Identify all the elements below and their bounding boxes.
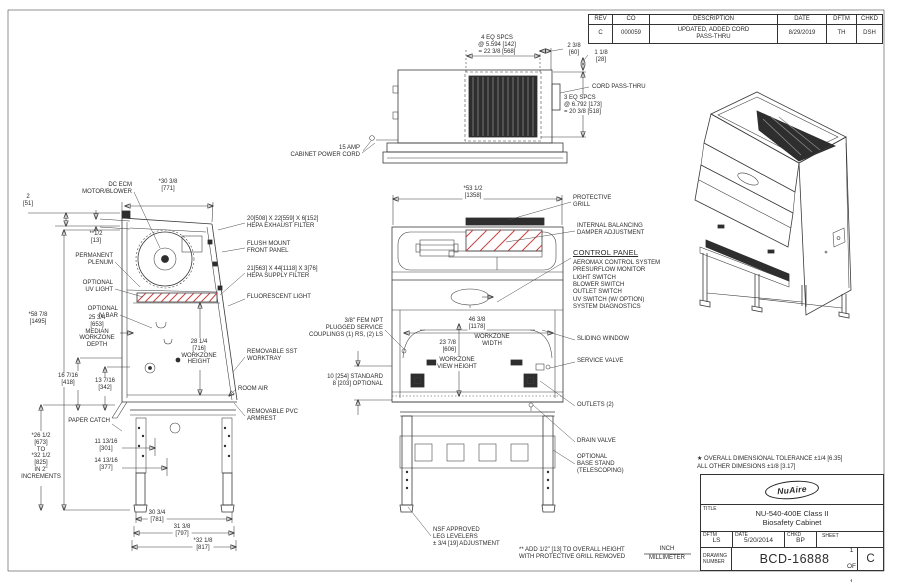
dim-30-3-8: *30 3/8 [771] (157, 179, 178, 193)
label-dc-ecm-motor: DC ECM MOTOR/BLOWER (82, 182, 132, 196)
dim-11-13-16: 11 13/16 [301] (94, 439, 119, 453)
dim-58-7-8: *58 7/8 [1495] (27, 312, 48, 326)
drawing-number-label: DRAWING NUMBER (701, 548, 732, 570)
label-fluorescent-light: FLUORESCENT LIGHT (247, 294, 311, 301)
label-control-panel-items: AEROMAX CONTROL SYSTEM PRESURFLOW MONITO… (573, 260, 660, 311)
drawing-number: BCD-16888 (732, 548, 858, 570)
label-room-air: ROOM AIR (238, 386, 268, 393)
co-header: CO (613, 15, 650, 24)
chkd-header: CHKD (857, 15, 882, 24)
description-value: UPDATED, ADDED CORD PASS-THRU (650, 25, 778, 43)
drawing-title: NU-540-400E Class II Biosafety Cabinet (756, 509, 829, 528)
label-paper-catch: PAPER CATCH (68, 418, 110, 425)
nuaire-logo: NuAire (764, 478, 819, 501)
label-3-eq-spaces: 3 EQ SPCS @ 6.792 [173] = 20 3/8 [518] (563, 95, 603, 115)
label-optional-uv-light: OPTIONAL UV LIGHT (83, 280, 113, 294)
front-view-drawing (354, 195, 691, 554)
dim-32-1-8: *32 1/8 [817] (192, 538, 213, 552)
rev-value: C (589, 25, 613, 43)
dim-base-increments: *26 1/2 [673] TO *32 1/2 [825] IN 2" INC… (20, 433, 62, 481)
label-nsf-leg-levelers: NSF APPROVED LEG LEVELERS ± 3/4 [19] ADJ… (433, 527, 500, 547)
drawing-number-row: DRAWING NUMBER BCD-16888 C (701, 548, 883, 570)
label-hepa-supply-filter: 21[563] X 44[1118] X 3[76] HEPA SUPPLY F… (247, 266, 318, 280)
drawing-sheet: 4 EQ SPCS @ 5.594 [142] = 22 3/8 [568] 2… (0, 0, 900, 582)
label-sliding-window: SLIDING WINDOW (577, 336, 629, 343)
date-value: 8/29/2019 (778, 25, 827, 43)
dftm-cell: DFTM LS (701, 532, 733, 547)
label-removable-sst-worktray: REMOVABLE SST WORKTRAY (247, 349, 297, 363)
side-view-drawing (28, 192, 245, 551)
co-value: 000059 (613, 25, 650, 43)
date-cell: DATE 5/20/2014 (733, 532, 785, 547)
label-removable-pvc-armrest: REMOVABLE PVC ARMREST (247, 409, 298, 423)
note-add-height: ** ADD 1/2" [13] TO OVERALL HEIGHT WITH … (519, 547, 625, 561)
title-block: NuAire TITLE NU-540-400E Class II Biosaf… (700, 474, 884, 571)
dim-13-7-16: 13 7/16 [342] (94, 378, 116, 392)
sheet-label: SHEET (820, 533, 839, 539)
revision-table-row: C 000059 UPDATED, ADDED CORD PASS-THRU 8… (589, 25, 882, 43)
date-value: 5/20/2014 (744, 538, 773, 545)
chkd-value: BP (796, 538, 805, 545)
label-outlets: OUTLETS (2) (577, 402, 614, 409)
title-row: TITLE NU-540-400E Class II Biosafety Cab… (701, 505, 883, 532)
logo-row: NuAire (701, 475, 883, 505)
dim-2-51: 2 [51] (23, 194, 33, 208)
revision-table: REV CO DESCRIPTION DATE DFTM CHKD C 0000… (588, 14, 883, 44)
title-label: TITLE (703, 506, 717, 512)
rev-header: REV (589, 15, 613, 24)
dim-16-7-16: 16 7/16 [418] (57, 373, 79, 387)
dim-1-1-8: 1 1/8 [28] (593, 50, 608, 64)
label-4-eq-spaces: 4 EQ SPCS @ 5.594 [142] = 22 3/8 [568] (478, 35, 516, 55)
chkd-cell: CHKD BP (785, 532, 817, 547)
dim-median-workzone-depth: 25 3/4 [653] MEDIAN WORKZONE DEPTH (79, 315, 114, 349)
dftm-header: DFTM (827, 15, 857, 24)
drawing-revision: C (858, 548, 883, 570)
dim-31-3-8: 31 3/8 [797] (173, 524, 192, 538)
dim-half-13: **1/2 [13] (88, 231, 103, 245)
dim-workzone-height: 28 1/4 [716] WORKZONE HEIGHT (180, 339, 217, 366)
dftm-value: LS (713, 538, 721, 545)
plan-view-drawing (362, 48, 589, 163)
dim-workzone-width-value: 46 3/8 [1178] (468, 317, 487, 331)
label-drain-valve: DRAIN VALVE (577, 438, 616, 445)
dim-opening-standard-optional: 10 [254] STANDARD 8 [203] OPTIONAL (326, 374, 384, 388)
label-protective-grill: PROTECTIVE GRILL (573, 195, 611, 209)
dim-30-3-4: 30 3/4 [781] (148, 510, 167, 524)
label-power-cord: 15 AMP CABINET POWER CORD (290, 145, 360, 159)
label-npt-service-couplings: 3/8" FEM NPT PLUGGED SERVICE COUPLINGS (… (309, 318, 383, 338)
label-cord-pass-thru: CORD PASS-THRU (592, 84, 646, 91)
label-permanent-plenum: PERMANENT PLENUM (75, 253, 113, 267)
label-internal-balancing-damper: INTERNAL BALANCING DAMPER ADJUSTMENT (577, 223, 644, 237)
revision-table-header: REV CO DESCRIPTION DATE DFTM CHKD (589, 15, 882, 25)
dftm-value: TH (827, 25, 857, 43)
dim-14-13-16: 14 13/16 [377] (93, 458, 118, 472)
label-hepa-exhaust-filter: 20[508] X 22[559] X 6[152] HEPA EXHAUST … (247, 216, 318, 230)
label-control-panel: CONTROL PANEL (573, 249, 638, 258)
date-header: DATE (778, 15, 827, 24)
label-workzone-view-height: WORKZONE VIEW HEIGHT (436, 357, 478, 371)
dim-23-7-8: 23 7/8 [606] (438, 340, 457, 354)
units-inch: INCH (660, 546, 675, 553)
info-row: DFTM LS DATE 5/20/2014 CHKD BP SHEET 1 O… (701, 532, 883, 548)
tolerance-note: ★ OVERALL DIMENSIONAL TOLERANCE ±1/4 [6.… (697, 456, 842, 471)
label-optional-base-stand: OPTIONAL BASE STAND (TELESCOPING) (577, 454, 624, 474)
label-flush-mount-front-panel: FLUSH MOUNT FRONT PANEL (247, 241, 290, 255)
units-millimeter: MILLIMETER (649, 555, 685, 562)
label-workzone-width: WORKZONE WIDTH (473, 334, 510, 348)
sheet-cell: SHEET 1 OF 1 (817, 532, 883, 547)
label-service-valve: SERVICE VALVE (577, 358, 623, 365)
description-header: DESCRIPTION (650, 15, 778, 24)
dim-53-1-2: *53 1/2 [1358] (462, 186, 483, 200)
isometric-view-drawing (695, 92, 851, 318)
dim-2-3-8: 2 3/8 [60] (566, 43, 581, 57)
chkd-value: DSH (857, 25, 882, 43)
